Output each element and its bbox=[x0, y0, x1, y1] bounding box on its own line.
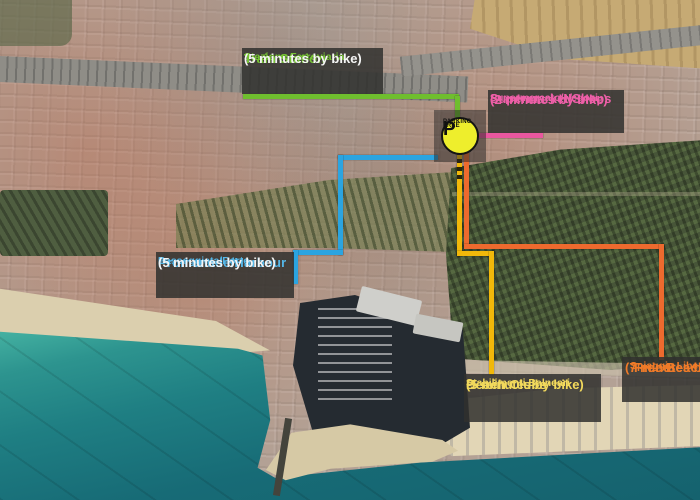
route-segment bbox=[489, 251, 494, 375]
label-time: (5 minutes by bike) bbox=[158, 255, 276, 270]
route-segment bbox=[338, 155, 438, 160]
free-parking-pin-icon: FREE PARKING P bbox=[441, 117, 479, 155]
label-time: (7 minutes by bike) bbox=[625, 360, 700, 375]
label-promenade-harbour: Promenade/Harbour Passeggiata/Porto (5 m… bbox=[156, 252, 294, 298]
route-segment bbox=[338, 155, 343, 255]
pin-letter: P bbox=[443, 120, 456, 139]
route-segment bbox=[659, 244, 664, 360]
marina-piers bbox=[318, 308, 392, 400]
route-segment bbox=[293, 250, 343, 255]
label-supermarket: Supermarket/Shops Supermercato/Negozi (2… bbox=[488, 90, 624, 133]
label-time: (5 minutes by bike) bbox=[466, 377, 584, 392]
route-segment bbox=[464, 153, 469, 249]
forest-path bbox=[452, 192, 700, 196]
label-free-beach: Free Beach Spiaggia Libera (7 minutes by… bbox=[622, 357, 700, 402]
route-segment bbox=[243, 94, 459, 99]
aerial-map: FREE PARKING P Train Station Stazione Fe… bbox=[0, 0, 700, 500]
label-time: (2 minutes by bike) bbox=[490, 92, 608, 107]
route-segment bbox=[479, 133, 543, 138]
label-time: (5 minutes by bike) bbox=[244, 51, 362, 66]
label-train-station: Train Station Stazione Ferroviaria (5 mi… bbox=[242, 48, 383, 94]
trees-patch bbox=[0, 0, 72, 46]
route-segment bbox=[464, 244, 664, 249]
park-patch bbox=[0, 190, 108, 256]
label-beach-clubs: Beach Clubs Stabilimenti Balneari (5 min… bbox=[464, 374, 601, 422]
